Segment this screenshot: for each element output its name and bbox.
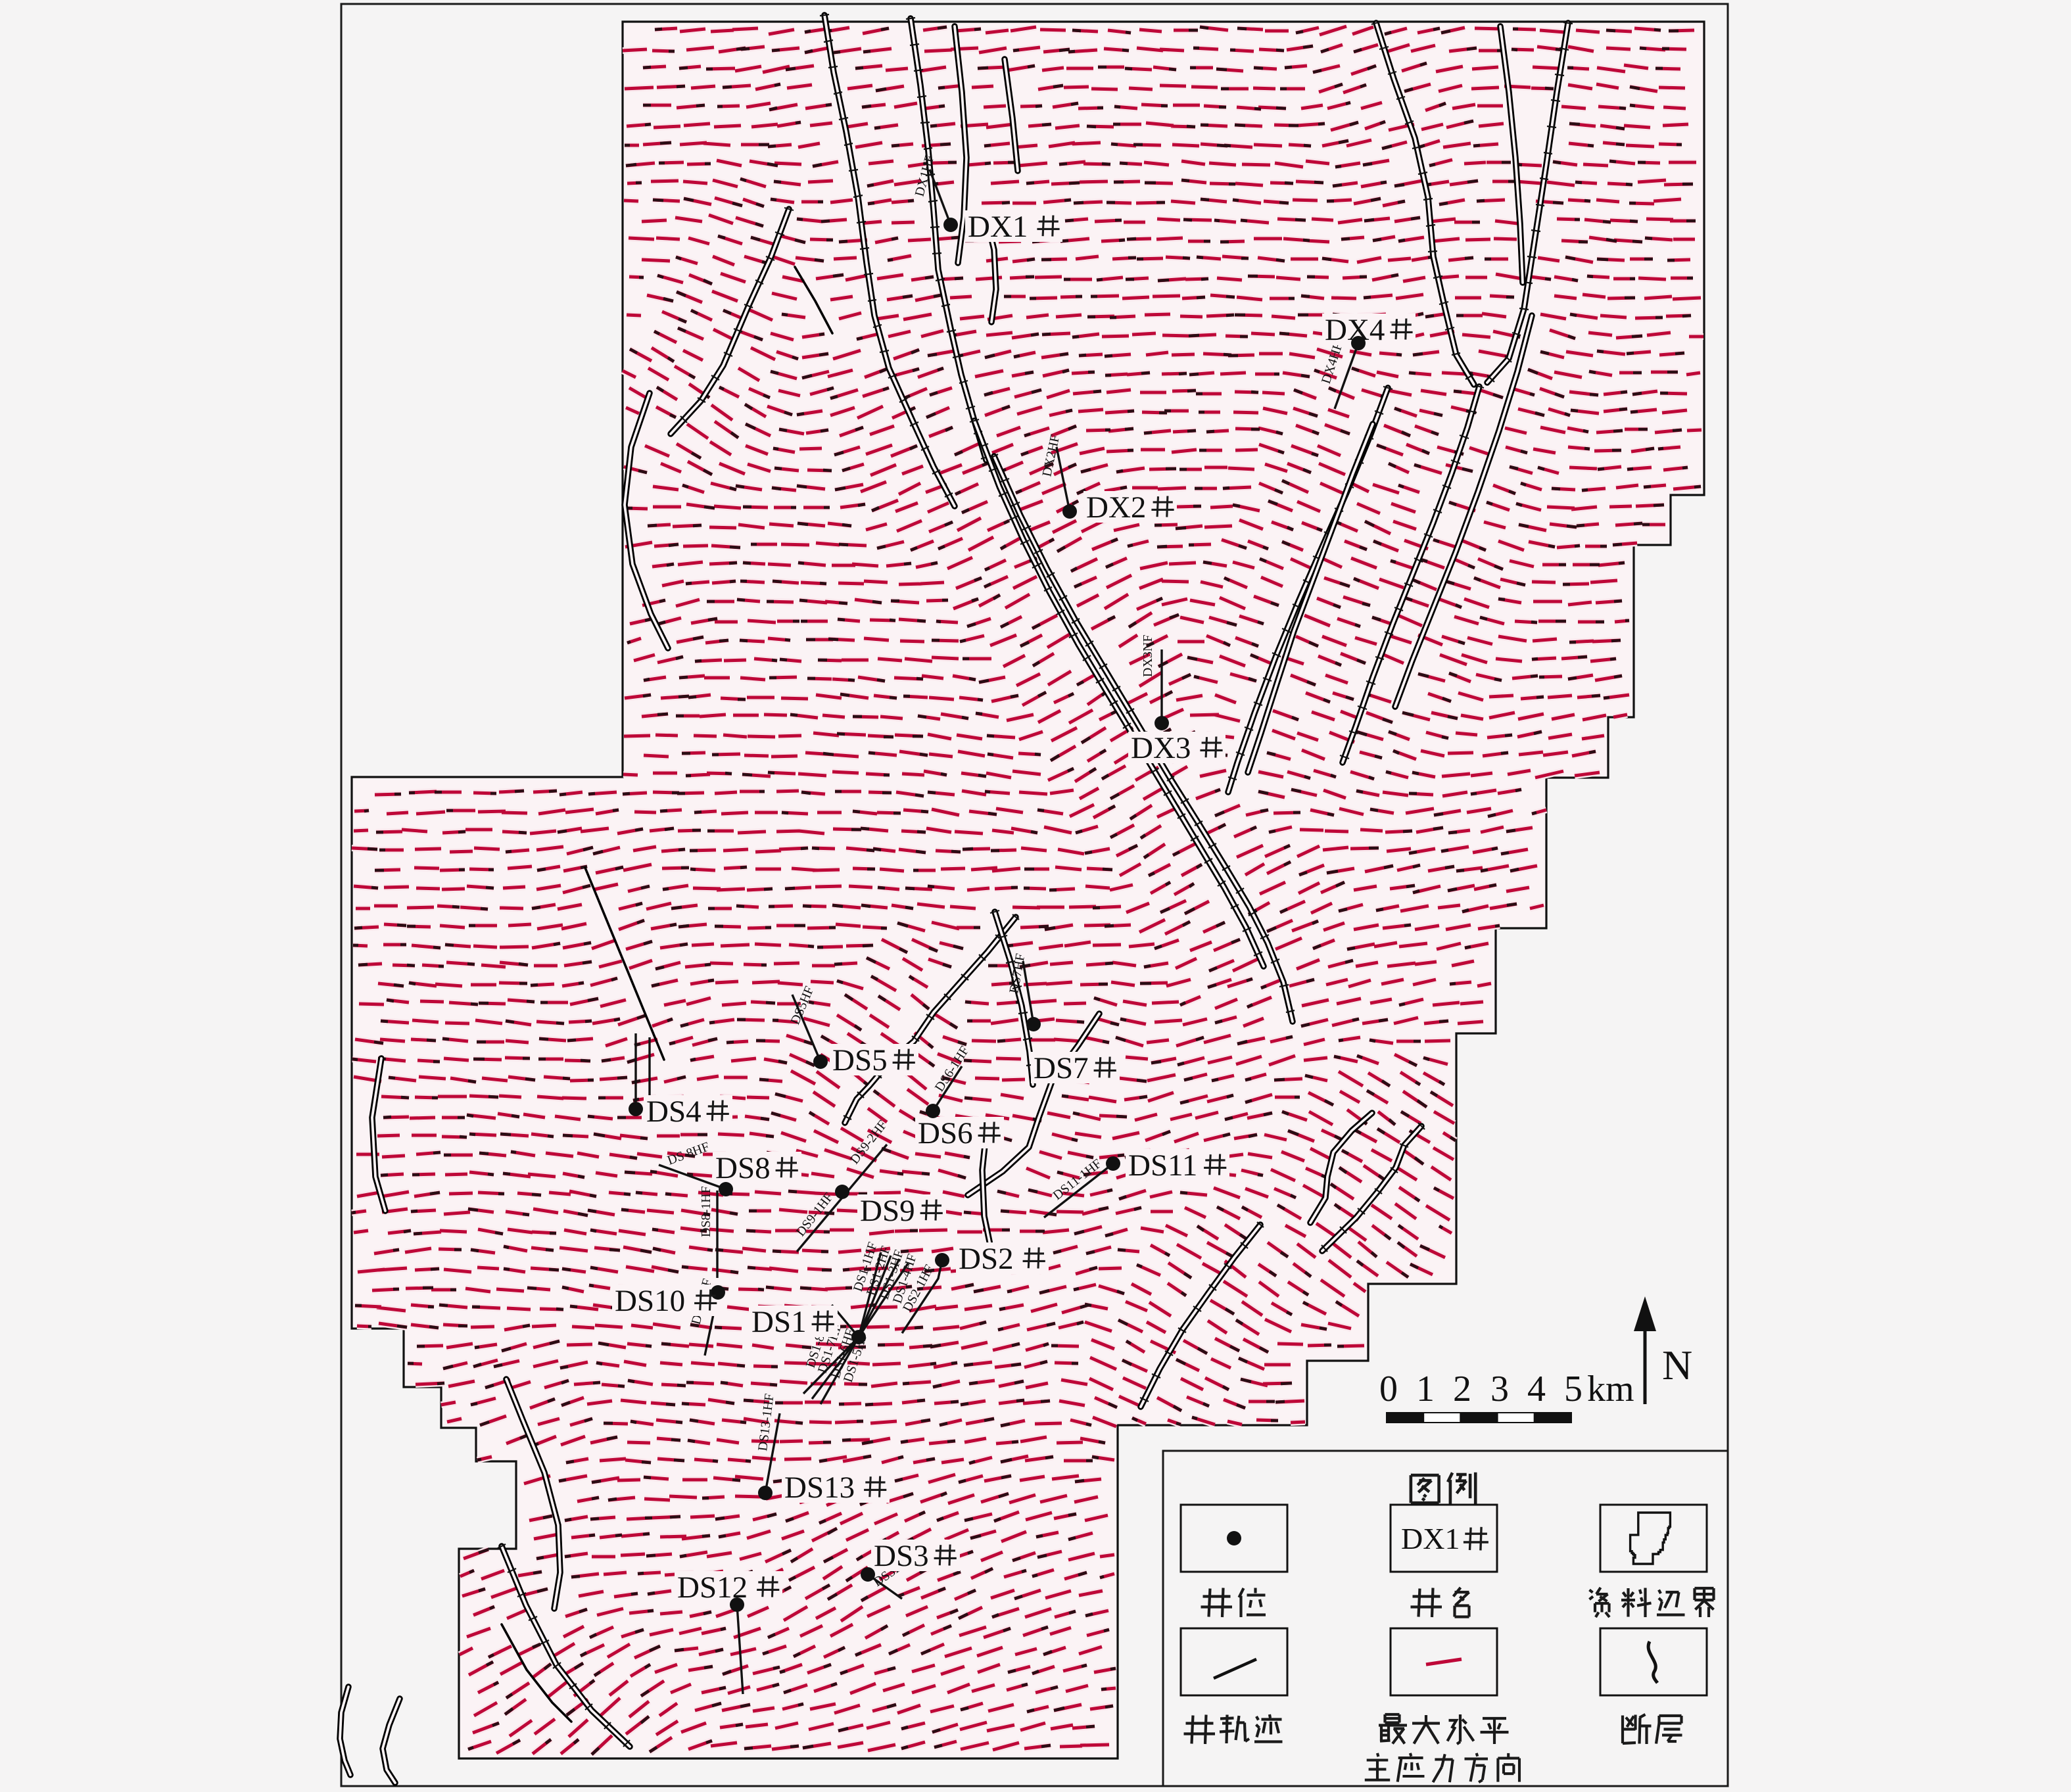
svg-text:DS8: DS8 <box>715 1151 771 1185</box>
svg-text:DS8-1HF: DS8-1HF <box>699 1186 713 1237</box>
svg-text:DS1: DS1 <box>751 1305 807 1339</box>
svg-text:0: 0 <box>1379 1369 1398 1409</box>
svg-text:DX3: DX3 <box>1131 731 1191 765</box>
svg-text:4: 4 <box>1527 1369 1546 1409</box>
svg-text:DS7: DS7 <box>1034 1051 1089 1085</box>
svg-text:DX1: DX1 <box>968 210 1028 244</box>
svg-text:1: 1 <box>1416 1369 1435 1409</box>
svg-text:DX4: DX4 <box>1325 313 1385 347</box>
svg-text:DS5: DS5 <box>832 1043 888 1077</box>
svg-text:DS9: DS9 <box>860 1194 915 1228</box>
svg-text:DX1: DX1 <box>1401 1522 1460 1555</box>
svg-text:3: 3 <box>1490 1369 1509 1409</box>
svg-text:DS10: DS10 <box>615 1284 685 1318</box>
svg-text:DS12: DS12 <box>677 1570 748 1605</box>
svg-text:km: km <box>1587 1369 1634 1409</box>
svg-text:N: N <box>1662 1342 1692 1388</box>
svg-text:5: 5 <box>1564 1369 1583 1409</box>
svg-text:DS13: DS13 <box>784 1471 855 1505</box>
svg-text:DS3: DS3 <box>874 1539 929 1573</box>
svg-text:DS4: DS4 <box>646 1095 702 1129</box>
svg-text:DS6: DS6 <box>918 1116 973 1150</box>
svg-text:DS11: DS11 <box>1128 1148 1197 1183</box>
svg-text:DS2: DS2 <box>959 1242 1014 1276</box>
svg-text:DX3NF: DX3NF <box>1141 635 1155 677</box>
svg-text:DX2: DX2 <box>1086 490 1146 525</box>
svg-text:2: 2 <box>1453 1369 1471 1409</box>
